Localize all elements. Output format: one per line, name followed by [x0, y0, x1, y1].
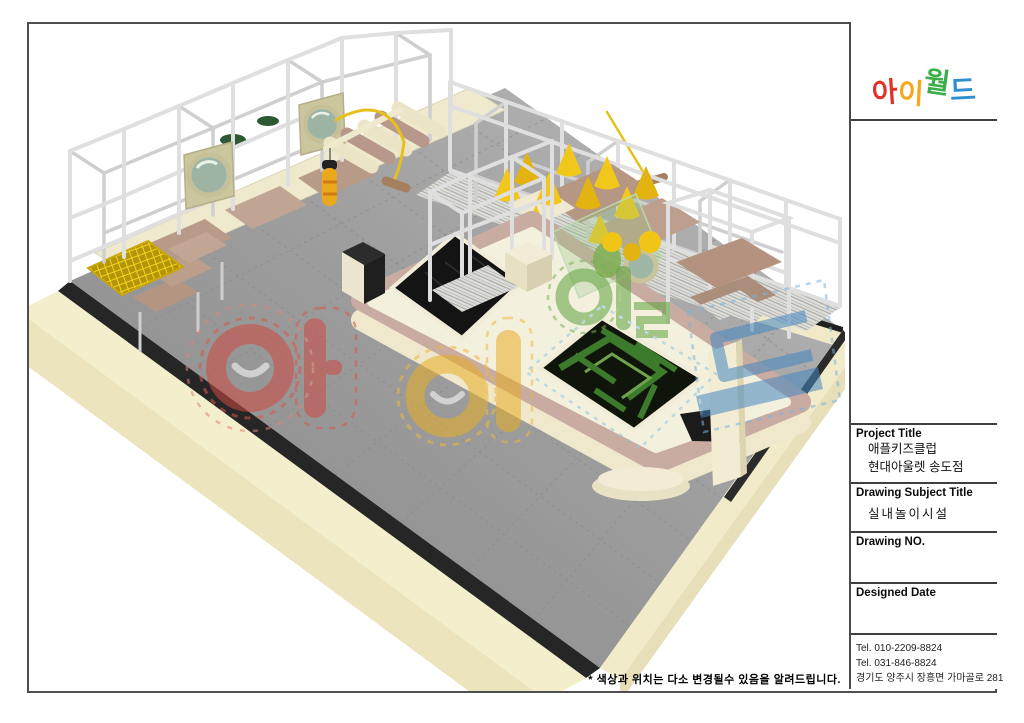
drawing-subject-box: Drawing Subject Title 실내놀이시설 [851, 482, 997, 531]
logo-letter: 월 [922, 67, 951, 98]
drawing-no-box: Drawing NO. [851, 531, 997, 581]
contact-tel1: Tel. 010-2209-8824 [856, 641, 992, 656]
drawing-sheet: * 색상과 위치는 다소 변경될수 있음을 알려드립니다. 아이월드 Proje… [0, 0, 1024, 723]
drawing-subject-label: Drawing Subject Title [856, 487, 992, 499]
kiosk-box [342, 242, 385, 304]
contact-box: Tel. 010-2209-8824 Tel. 031-846-8824 경기도… [851, 633, 997, 689]
logo-box: 아이월드 [851, 22, 997, 119]
drawing-no-label: Drawing NO. [856, 536, 992, 548]
project-title-line1: 애플키즈클럽 [856, 440, 992, 458]
project-title-line2: 현대아울렛 송도점 [856, 458, 992, 476]
logo-letter: 아 [872, 78, 900, 108]
logo-letter: 드 [949, 76, 976, 105]
blank-box [851, 119, 997, 423]
project-title-box: Project Title 애플키즈클럽 현대아울렛 송도점 [851, 423, 997, 481]
iworld-logo: 아이월드 [872, 79, 975, 107]
designed-date-box: Designed Date [851, 582, 997, 633]
contact-tel2: Tel. 031-846-8824 [856, 656, 992, 671]
designed-date-label: Designed Date [856, 587, 992, 599]
project-title-label: Project Title [856, 428, 992, 440]
contact-address: 경기도 양주시 장흥면 가마골로 281 [856, 671, 992, 686]
drawing-subject-value: 실내놀이시설 [856, 499, 992, 523]
logo-letter: 이 [898, 79, 925, 108]
title-block: 아이월드 Project Title 애플키즈클럽 현대아울렛 송도점 Draw… [849, 22, 997, 689]
footer-note: * 색상과 위치는 다소 변경될수 있음을 알려드립니다. [588, 671, 841, 687]
